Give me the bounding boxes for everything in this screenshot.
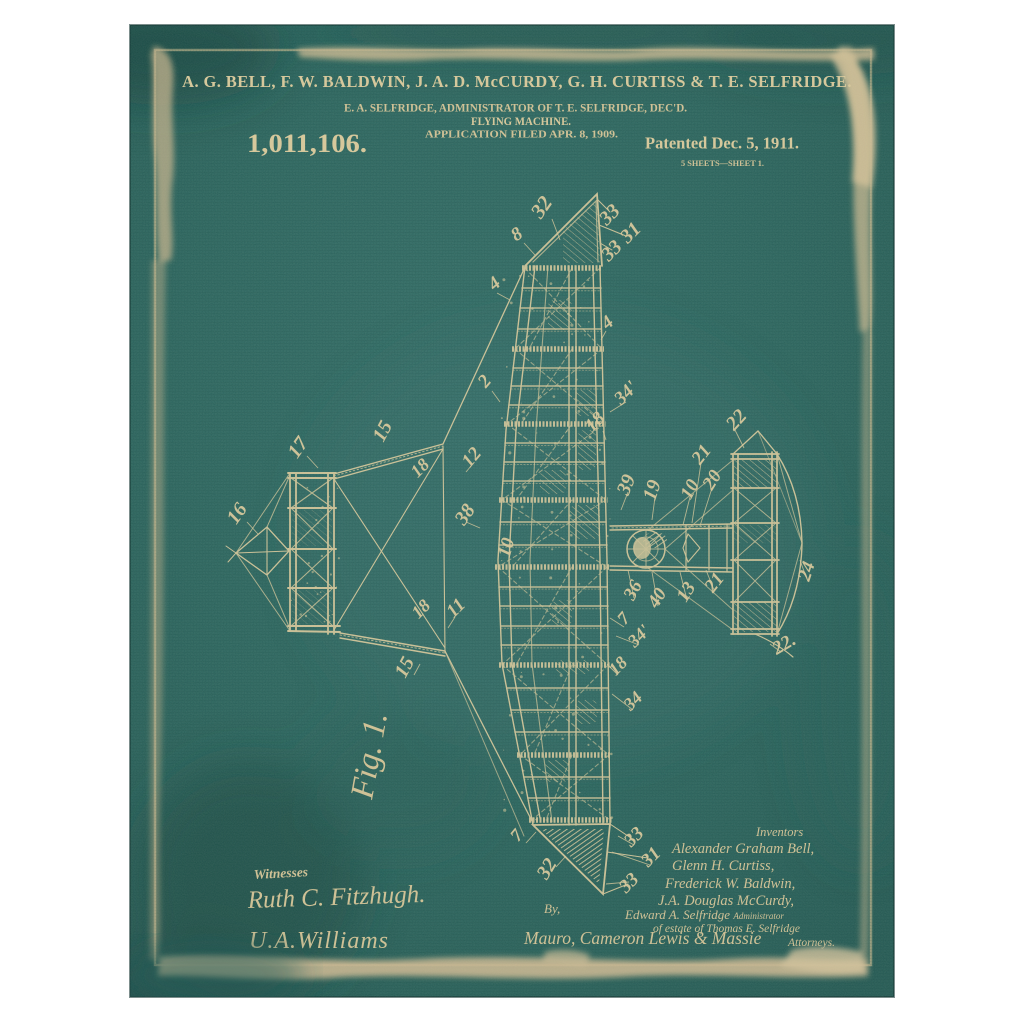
svg-text:Frederick W. Baldwin,: Frederick W. Baldwin, (664, 876, 795, 892)
svg-text:Patented Dec. 5, 1911.: Patented Dec. 5, 1911. (645, 134, 799, 153)
svg-text:Attorneys.: Attorneys. (787, 937, 835, 949)
svg-text:E. A. SELFRIDGE, ADMINISTRATOR: E. A. SELFRIDGE, ADMINISTRATOR OF T. E. … (344, 101, 687, 115)
svg-text:Mauro, Cameron Lewis & Massie: Mauro, Cameron Lewis & Massie (523, 928, 762, 948)
svg-text:Inventors: Inventors (755, 825, 803, 839)
svg-text:APPLICATION FILED APR. 8, 1909: APPLICATION FILED APR. 8, 1909. (425, 129, 618, 141)
svg-text:1,011,106.: 1,011,106. (247, 129, 367, 158)
svg-text:By,: By, (544, 901, 560, 916)
svg-text:Alexander Graham Bell,: Alexander Graham Bell, (671, 841, 814, 857)
svg-text:A. G. BELL, F. W. BALDWIN, J.: A. G. BELL, F. W. BALDWIN, J. A. D. McCU… (182, 72, 852, 91)
svg-text:Witnesses: Witnesses (253, 864, 308, 882)
svg-text:FLYING MACHINE.: FLYING MACHINE. (471, 114, 571, 128)
svg-text:Glenn H. Curtiss,: Glenn H. Curtiss, (672, 858, 774, 874)
svg-text:5 SHEETS—SHEET 1.: 5 SHEETS—SHEET 1. (681, 158, 764, 168)
